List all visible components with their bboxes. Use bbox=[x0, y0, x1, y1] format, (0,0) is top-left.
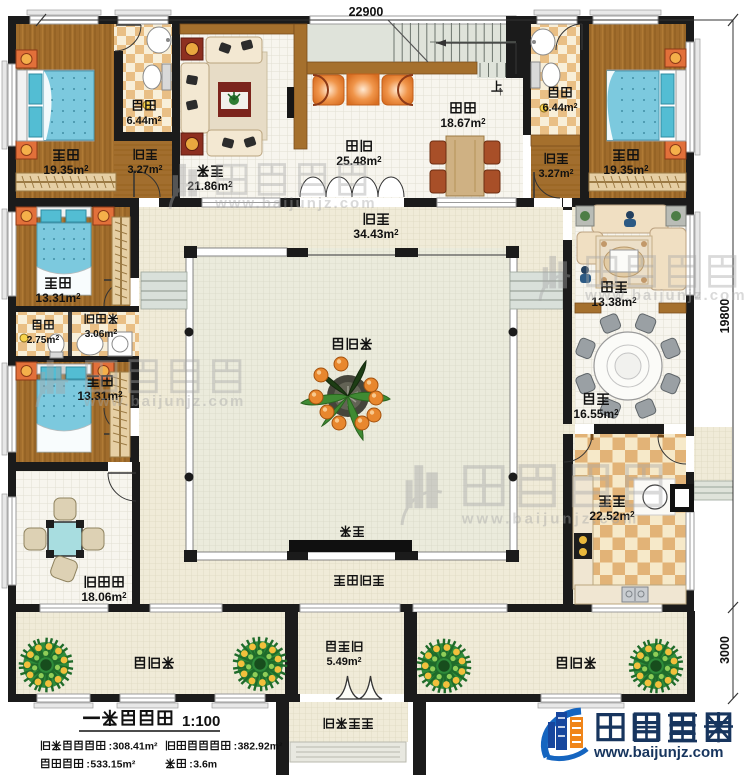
svg-text:3.06m2: 3.06m2 bbox=[85, 329, 118, 340]
svg-text:6.44m2: 6.44m2 bbox=[126, 115, 161, 127]
svg-text:308.41m²: 308.41m² bbox=[113, 741, 158, 753]
svg-text:2.75m2: 2.75m2 bbox=[27, 335, 60, 346]
svg-text:34.43m2: 34.43m2 bbox=[353, 227, 399, 241]
svg-text:19.35m2: 19.35m2 bbox=[603, 163, 649, 177]
svg-text::: : bbox=[109, 741, 113, 753]
svg-text:13.31m2: 13.31m2 bbox=[35, 291, 81, 305]
svg-text:22900: 22900 bbox=[349, 5, 384, 19]
svg-text:www.baijunjz.com: www.baijunjz.com bbox=[214, 195, 376, 212]
svg-text:www.baijunjz.com: www.baijunjz.com bbox=[461, 511, 639, 528]
svg-text:www.baijunjz.com: www.baijunjz.com bbox=[584, 287, 746, 304]
svg-text:1:100: 1:100 bbox=[182, 713, 220, 730]
svg-text:25.48m2: 25.48m2 bbox=[336, 154, 382, 168]
svg-text:3.27m2: 3.27m2 bbox=[538, 168, 573, 180]
svg-text:19.35m2: 19.35m2 bbox=[43, 163, 89, 177]
svg-text:3000: 3000 bbox=[718, 636, 732, 664]
svg-text:18.06m2: 18.06m2 bbox=[81, 590, 127, 604]
svg-text:www.baijunjz.com: www.baijunjz.com bbox=[83, 393, 245, 410]
svg-text::: : bbox=[189, 759, 193, 771]
svg-text:www.baijunjz.com: www.baijunjz.com bbox=[593, 744, 723, 761]
svg-text:6.44m2: 6.44m2 bbox=[542, 102, 577, 114]
svg-text:3.27m2: 3.27m2 bbox=[127, 164, 162, 176]
svg-text::: : bbox=[234, 741, 238, 753]
svg-text:18.67m2: 18.67m2 bbox=[440, 116, 486, 130]
svg-text:16.55m2: 16.55m2 bbox=[573, 407, 619, 421]
svg-text:3.6m: 3.6m bbox=[193, 759, 217, 771]
svg-text:533.15m²: 533.15m² bbox=[90, 759, 135, 771]
svg-text:5.49m2: 5.49m2 bbox=[326, 656, 361, 668]
svg-text::: : bbox=[86, 759, 90, 771]
svg-text:382.92m²: 382.92m² bbox=[238, 741, 283, 753]
